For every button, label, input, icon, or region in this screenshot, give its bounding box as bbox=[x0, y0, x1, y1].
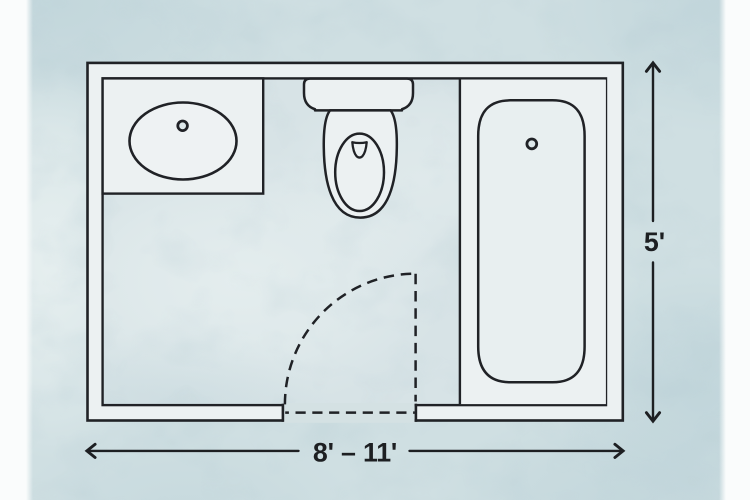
svg-text:8' – 11': 8' – 11' bbox=[313, 437, 397, 467]
svg-text:5': 5' bbox=[644, 227, 665, 257]
